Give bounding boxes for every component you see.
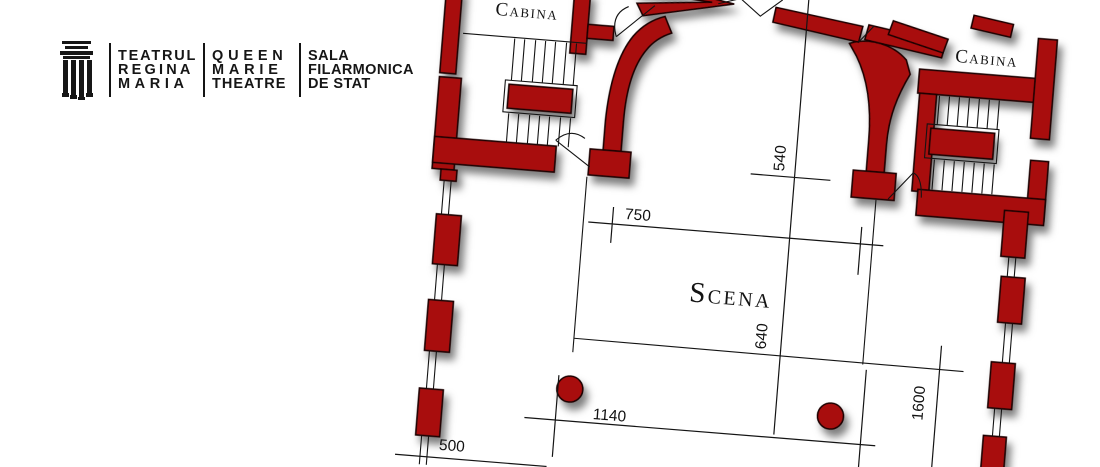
dim-label-540: 540: [771, 144, 790, 172]
stage-edge-right: [863, 200, 876, 364]
arch-pier-right-foot: [851, 170, 896, 200]
wall-north-stub: [971, 15, 1014, 37]
dimension-540-640: 540 640: [730, 0, 846, 437]
dimension-750: 750: [586, 203, 885, 277]
pilaster-west-3: [416, 388, 444, 437]
stair-treads: [506, 113, 570, 147]
dimension-1600: 1600: [904, 344, 942, 467]
wall-west-stub: [440, 169, 457, 181]
stair-landing-left: [507, 84, 573, 113]
pilaster-east-1: [998, 276, 1026, 324]
arch-pier-right: [839, 40, 912, 174]
theatre-floor-plan-page: TEATRUL REGINA MARIA QUEEN MARIE THEATRE…: [0, 0, 1100, 467]
stair-treads: [932, 160, 994, 195]
arch-pier-left-foot: [588, 149, 631, 178]
room-label-cabina-right: Cabina: [954, 46, 1018, 72]
pilaster-east-2: [988, 362, 1016, 410]
stair-landing-right: [929, 128, 995, 159]
pilaster-west-2: [424, 299, 453, 352]
dim-label-1140: 1140: [592, 406, 627, 426]
wall-back-center: [772, 7, 864, 42]
room-label-cabina-left: Cabina: [495, 0, 559, 25]
plan-rotated-group: 750 540 640 1140 500 1600 Cabina Cabina: [394, 0, 1061, 467]
room-label-scena: Scena: [688, 276, 773, 315]
dimension-500: 500: [395, 433, 548, 466]
dim-label-640: 640: [753, 322, 772, 350]
stage-column-right: [816, 402, 844, 430]
stage-edge-left: [573, 177, 587, 352]
wall-west-upper: [440, 0, 463, 74]
door-stage-left: [554, 132, 592, 167]
stair-treads: [511, 39, 576, 86]
wall-cabina-left-jut: [587, 24, 614, 40]
dim-label-500: 500: [438, 437, 466, 456]
wall-east-upper: [1030, 39, 1057, 140]
stage-column-left: [556, 375, 584, 403]
wall-east-stem: [1001, 210, 1029, 258]
stair-treads: [937, 96, 999, 130]
pilaster-east-3: [979, 435, 1006, 467]
floor-plan: 750 540 640 1140 500 1600 Cabina Cabina: [0, 0, 1100, 467]
pilaster-west-1: [432, 214, 461, 266]
dim-label-750: 750: [624, 206, 652, 225]
dim-label-1600: 1600: [909, 385, 929, 421]
